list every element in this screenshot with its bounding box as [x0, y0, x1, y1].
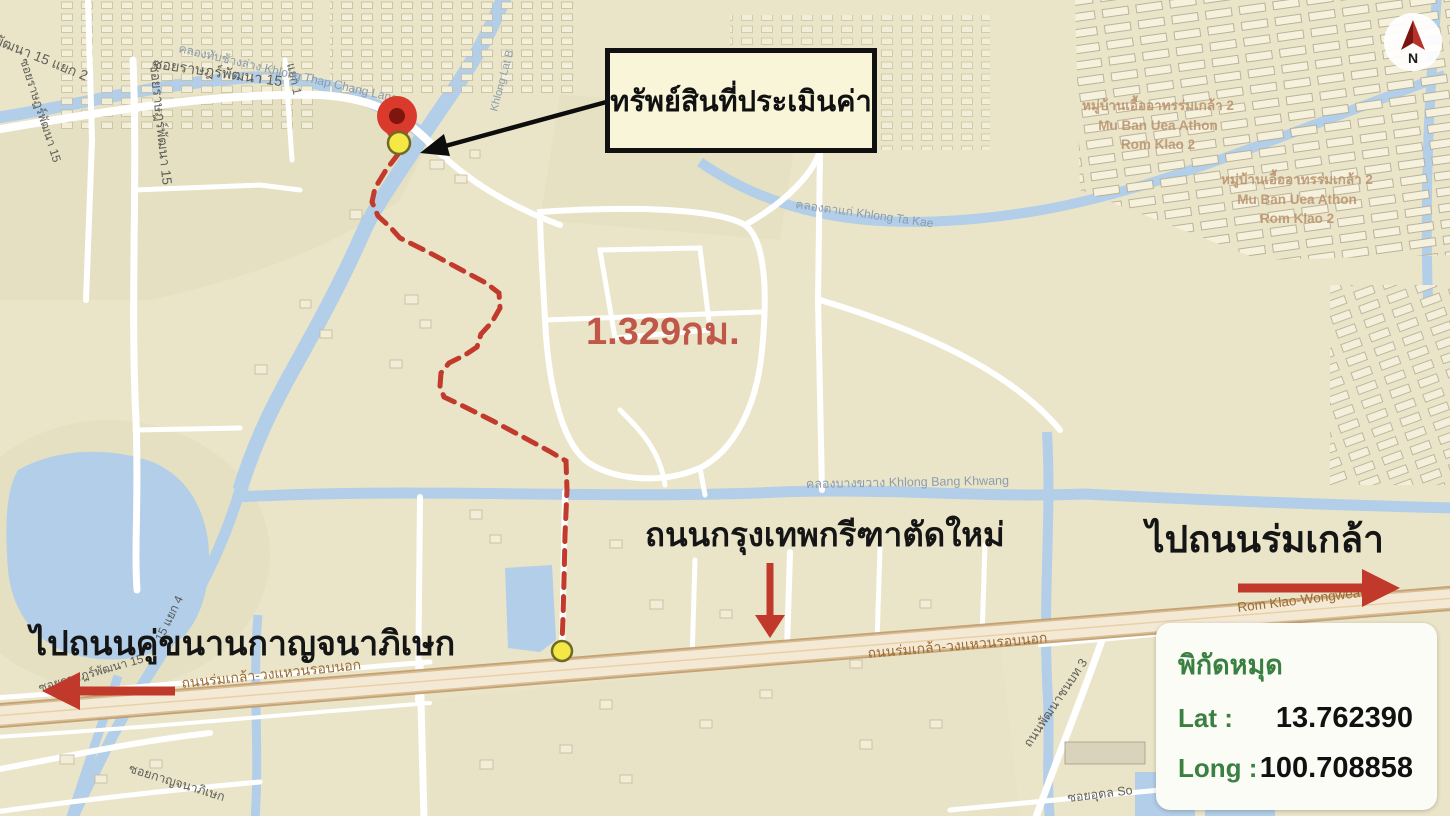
lat-value: 13.762390	[1273, 702, 1413, 735]
new-road-label: ถนนกรุงเทพกรีฑาตัดใหม่	[645, 508, 1005, 561]
long-label: Long :	[1178, 753, 1260, 784]
map-label-muban-2-line1: หมู่บ้านเอื้ออาทรร่มเกล้า 2	[1221, 169, 1373, 188]
lat-label: Lat :	[1178, 703, 1273, 734]
map-label-muban-1-line3: Rom Klao 2	[1121, 137, 1195, 152]
to-kanchanaphisek-label: ไปถนนคู่ขนานกาญจนาภิเษก	[30, 616, 455, 670]
map-label-muban-2-line3: Rom Klao 2	[1260, 211, 1334, 226]
route-end-marker	[552, 641, 572, 661]
map-label-muban-2-line2: Mu Ban Uea Athon	[1237, 192, 1357, 207]
map-label-muban-1-line1: หมู่บ้านเอื้ออาทรร่มเกล้า 2	[1082, 95, 1234, 114]
lat-row: Lat : 13.762390	[1178, 702, 1413, 735]
map-screenshot: ซอยราษฎร์พัฒนา 15 แยก 2 ซอยราษฎร์พัฒนา 1…	[0, 0, 1450, 816]
distance-label: 1.329กม.	[586, 300, 740, 361]
route-start-marker	[388, 132, 410, 154]
coordinate-box-title: พิกัดหมุด	[1178, 643, 1413, 686]
north-arrow-icon: N	[1384, 13, 1442, 71]
callout-label: ทรัพย์สินที่ประเมินค่า	[610, 78, 872, 124]
north-letter: N	[1408, 50, 1418, 66]
callout-box: ทรัพย์สินที่ประเมินค่า	[605, 48, 877, 153]
long-row: Long : 100.708858	[1178, 752, 1413, 785]
map-label-muban-1-line2: Mu Ban Uea Athon	[1098, 118, 1218, 133]
north-compass: N	[1384, 13, 1442, 71]
to-rom-klao-label: ไปถนนร่มเกล้า	[1146, 510, 1384, 569]
coordinate-box: พิกัดหมุด Lat : 13.762390 Long : 100.708…	[1156, 623, 1437, 810]
long-value: 100.708858	[1260, 752, 1413, 785]
